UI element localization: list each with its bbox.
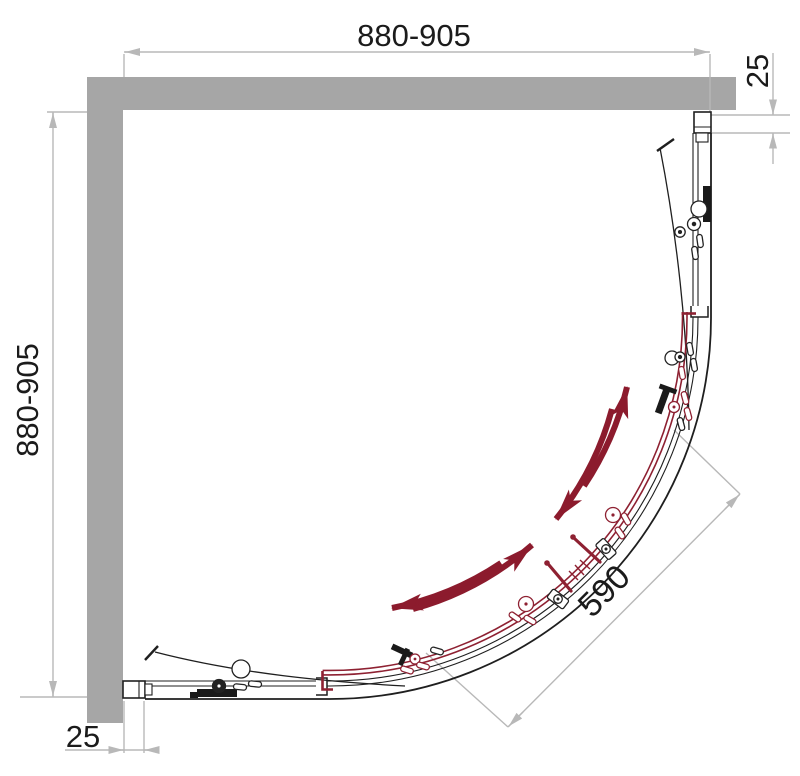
dim-label-door-opening: 590 xyxy=(571,558,638,625)
axle-dot xyxy=(679,356,682,359)
door-edge-cap-top xyxy=(657,139,674,151)
roller-cluster-bottom xyxy=(190,660,262,698)
arrow-up-right-icon xyxy=(725,495,739,509)
roller-wheel-icon xyxy=(691,201,707,217)
track-outer-line xyxy=(145,133,711,699)
roller-bracket xyxy=(690,358,698,372)
roller-bracket xyxy=(430,647,444,656)
dim-label-bottom-profile: 25 xyxy=(66,719,100,754)
roller-bracket xyxy=(691,246,698,260)
door-glass-inner-line xyxy=(323,312,683,670)
handle-knob xyxy=(570,534,576,540)
track-bracket xyxy=(190,692,198,698)
roller-bracket-red xyxy=(416,662,430,671)
door-glass-outer-line xyxy=(323,312,688,675)
dim-label-top-width: 880-905 xyxy=(357,18,471,53)
wall-left xyxy=(87,77,123,723)
door-edge-cap-bottom xyxy=(145,646,158,660)
axle-dot xyxy=(692,222,695,225)
wall-top xyxy=(87,77,736,110)
arrow-down-left-icon xyxy=(509,712,523,726)
dim-label-left-depth: 880-905 xyxy=(10,343,45,457)
sliding-doors-red xyxy=(323,312,697,690)
roller-bracket-red xyxy=(400,665,414,674)
frame-track xyxy=(145,133,711,699)
axle-dot xyxy=(524,602,527,605)
wall-profile-top-right xyxy=(694,112,711,142)
roller-cluster-mid-upper xyxy=(595,508,631,561)
dim-label-right-profile: 25 xyxy=(740,54,775,88)
slide-arrow-upper-back xyxy=(556,409,612,519)
door-stop-upper xyxy=(655,384,692,431)
walls xyxy=(87,77,736,723)
roller-bracket xyxy=(686,342,694,356)
technical-drawing-page: 880-905 880-905 25 25 590 xyxy=(0,0,800,776)
roller-wheel-icon xyxy=(232,660,250,678)
axle-dot xyxy=(679,231,682,234)
slide-arrow-lower-out xyxy=(392,563,501,608)
axle-dot xyxy=(414,658,417,661)
roller-bracket xyxy=(696,234,703,248)
shower-enclosure-plan-svg: 880-905 880-905 25 25 590 xyxy=(0,0,800,776)
handle-knob xyxy=(544,560,550,566)
roller-bracket-red xyxy=(678,366,686,380)
axle-dot xyxy=(611,513,614,516)
fixed-panel-top-cap xyxy=(691,306,708,317)
roller-bracket xyxy=(248,681,262,688)
roller-bracket-red xyxy=(684,407,693,421)
axle-dot xyxy=(673,406,676,409)
track-carriage xyxy=(595,538,617,560)
axle-dot xyxy=(217,684,220,687)
wall-profile-bottom-left xyxy=(123,681,152,698)
roller-bracket xyxy=(233,684,247,691)
